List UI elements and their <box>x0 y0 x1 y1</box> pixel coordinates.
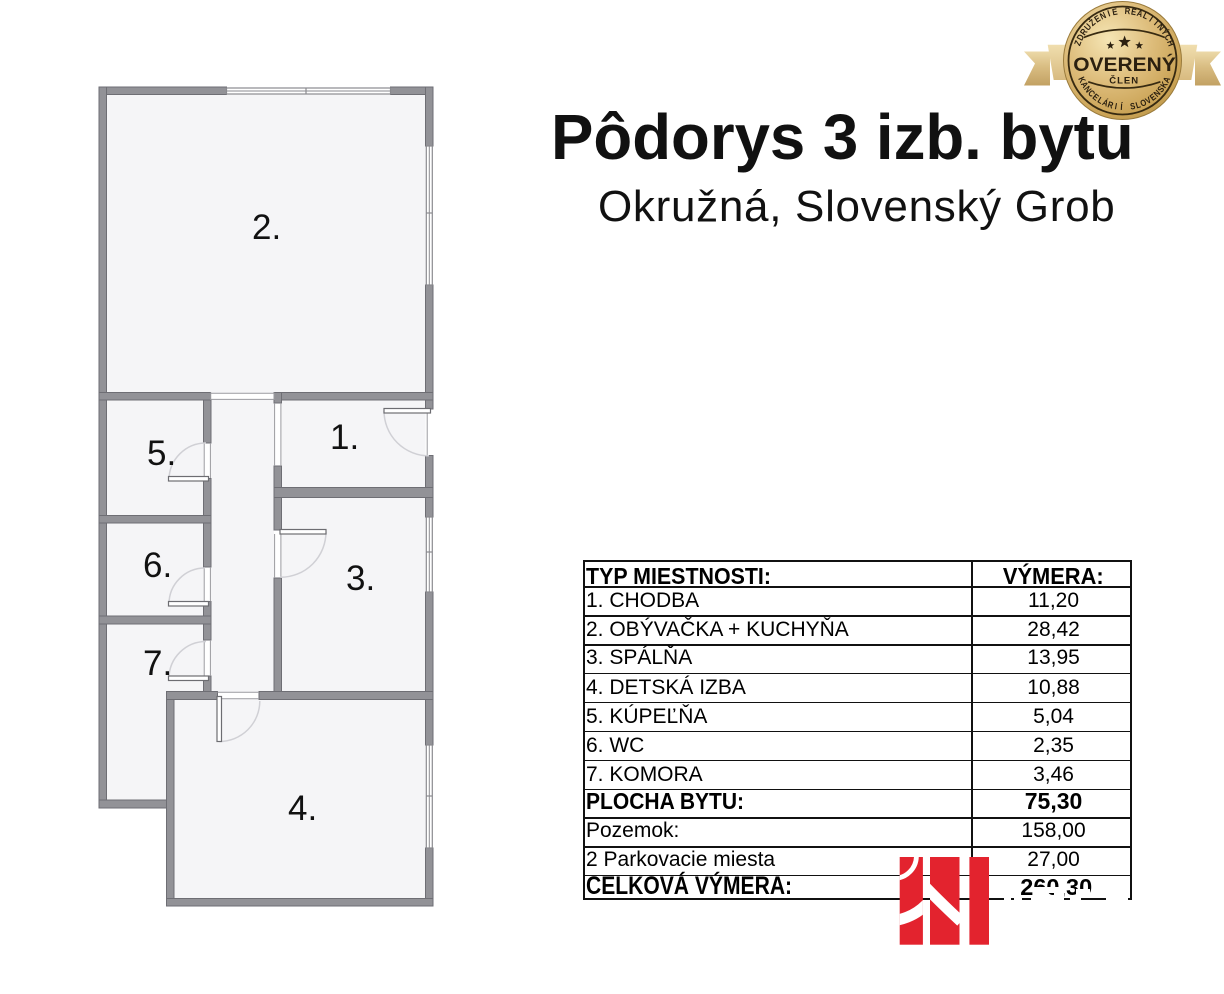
svg-text:OVERENÝ: OVERENÝ <box>1073 54 1176 76</box>
svg-text:ČLEN: ČLEN <box>1109 74 1139 86</box>
svg-text:2.: 2. <box>252 208 281 247</box>
svg-text:3.: 3. <box>346 559 375 598</box>
svg-text:4.: 4. <box>288 789 317 828</box>
svg-text:7.: 7. <box>143 644 172 683</box>
svg-text:5.: 5. <box>147 434 176 473</box>
svg-text:1.: 1. <box>330 418 359 457</box>
svg-text:6.: 6. <box>143 546 172 585</box>
svg-text:R: R <box>1124 5 1130 16</box>
